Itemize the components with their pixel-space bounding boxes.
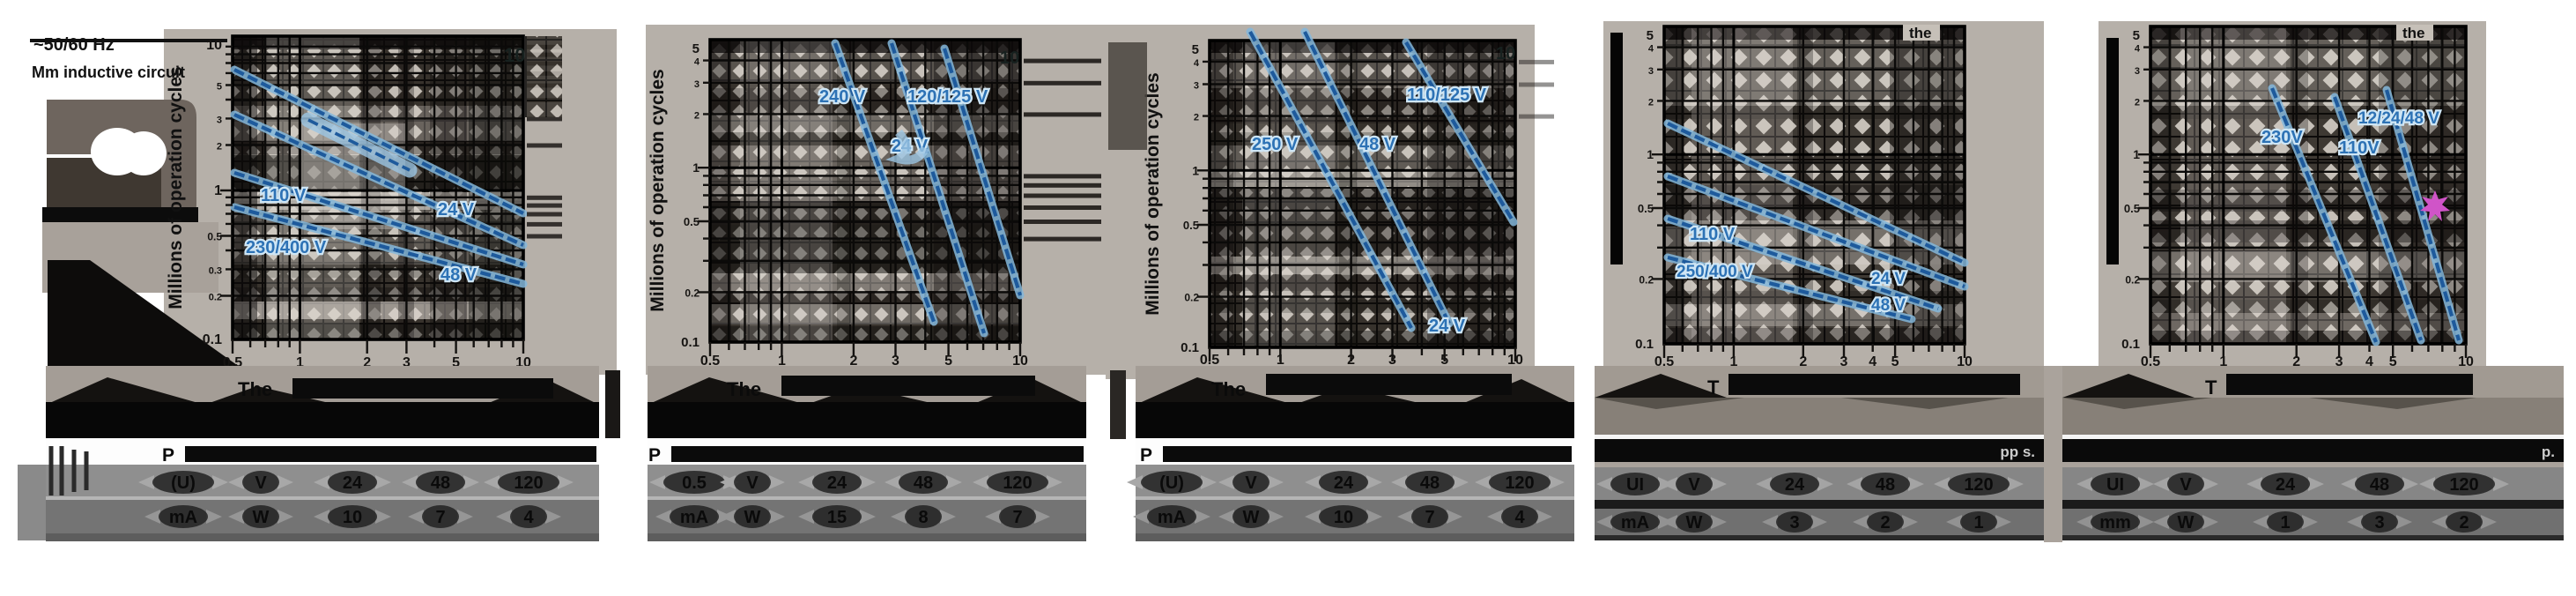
svg-text:230/400 V: 230/400 V — [246, 238, 327, 257]
svg-text:mA: mA — [680, 508, 708, 527]
svg-text:24: 24 — [1334, 473, 1354, 493]
svg-text:15: 15 — [827, 508, 847, 527]
svg-text:mA: mA — [169, 508, 197, 527]
svg-text:W: W — [1243, 508, 1260, 527]
svg-text:0.2: 0.2 — [2125, 273, 2140, 286]
svg-text:10: 10 — [206, 38, 222, 53]
svg-text:3: 3 — [1648, 66, 1654, 77]
svg-text:4: 4 — [1514, 508, 1525, 527]
svg-text:V: V — [1688, 475, 1700, 495]
svg-text:Millions of operation cycles: Millions of operation cycles — [648, 69, 668, 311]
svg-text:0.5: 0.5 — [1183, 219, 1199, 232]
svg-text:120: 120 — [1505, 473, 1534, 493]
svg-text:120: 120 — [1964, 475, 1993, 495]
svg-text:4: 4 — [694, 57, 700, 68]
svg-text:120: 120 — [1003, 473, 1032, 493]
svg-text:24: 24 — [2276, 475, 2296, 495]
svg-text:0.1: 0.1 — [1635, 337, 1654, 352]
svg-text:1: 1 — [1973, 513, 1983, 533]
svg-text:230V: 230V — [2261, 128, 2303, 147]
svg-text:(U): (U) — [1159, 473, 1184, 493]
svg-text:0.1: 0.1 — [2121, 337, 2140, 352]
svg-text:110V: 110V — [2339, 138, 2380, 158]
svg-text:P: P — [1140, 445, 1152, 466]
svg-text:W: W — [1686, 513, 1703, 533]
svg-text:(U): (U) — [171, 473, 196, 493]
svg-text:7: 7 — [1012, 508, 1022, 527]
svg-text:2: 2 — [694, 110, 700, 121]
svg-text:2: 2 — [1347, 353, 1355, 368]
svg-text:mm: mm — [2099, 513, 2131, 533]
svg-text:2: 2 — [1194, 113, 1199, 123]
svg-text:10: 10 — [504, 44, 525, 66]
svg-text:V: V — [255, 473, 267, 493]
svg-text:120: 120 — [2449, 475, 2478, 495]
svg-text:7: 7 — [435, 508, 445, 527]
svg-text:24 V: 24 V — [438, 200, 475, 220]
svg-text:3: 3 — [1388, 353, 1396, 368]
svg-text:2: 2 — [217, 142, 222, 153]
svg-text:2: 2 — [2135, 97, 2140, 108]
svg-text:W: W — [253, 508, 270, 527]
svg-text:110 V: 110 V — [261, 186, 307, 205]
svg-text:T: T — [2205, 376, 2217, 399]
svg-text:W: W — [744, 508, 761, 527]
svg-text:250 V: 250 V — [1252, 135, 1299, 154]
svg-text:250/400 V: 250/400 V — [1677, 263, 1753, 281]
svg-text:120/125 V: 120/125 V — [907, 87, 988, 107]
svg-text:4: 4 — [1194, 58, 1200, 69]
svg-text:5: 5 — [2133, 28, 2140, 43]
svg-text:48: 48 — [1876, 475, 1895, 495]
svg-text:0.2: 0.2 — [685, 287, 700, 299]
svg-text:10: 10 — [1000, 48, 1019, 68]
svg-text:24: 24 — [343, 473, 363, 493]
svg-text:3: 3 — [2374, 513, 2384, 533]
svg-text:UI: UI — [1626, 475, 1644, 495]
svg-text:0.1: 0.1 — [681, 335, 700, 350]
svg-text:3: 3 — [1194, 81, 1199, 92]
svg-text:0.2: 0.2 — [1184, 292, 1199, 304]
svg-text:V: V — [1245, 473, 1257, 493]
svg-text:the: the — [1909, 25, 1932, 41]
svg-text:48: 48 — [1420, 473, 1440, 493]
svg-text:10: 10 — [1334, 508, 1353, 527]
svg-text:0.5: 0.5 — [1638, 202, 1654, 215]
svg-text:p.: p. — [2542, 443, 2555, 460]
svg-text:0.5: 0.5 — [1200, 353, 1219, 368]
svg-text:110 V: 110 V — [1690, 225, 1736, 244]
svg-text:12/24/48 V: 12/24/48 V — [2358, 109, 2439, 128]
svg-text:5: 5 — [1440, 353, 1448, 368]
svg-text:3: 3 — [217, 115, 222, 125]
svg-text:48: 48 — [914, 473, 933, 493]
svg-text:mA: mA — [1158, 508, 1186, 527]
svg-text:1: 1 — [2280, 513, 2290, 533]
svg-text:The: The — [727, 378, 761, 400]
svg-text:5: 5 — [1192, 42, 1199, 57]
svg-text:0.5: 0.5 — [682, 473, 707, 493]
svg-text:24: 24 — [1785, 475, 1805, 495]
svg-text:4: 4 — [2135, 44, 2141, 55]
svg-text:48: 48 — [2370, 475, 2389, 495]
svg-text:24: 24 — [827, 473, 848, 493]
svg-text:Millions of operation cycles: Millions of operation cycles — [166, 66, 186, 309]
svg-text:V: V — [2180, 475, 2192, 495]
svg-text:5: 5 — [217, 82, 222, 93]
svg-text:7: 7 — [1425, 508, 1434, 527]
svg-text:P: P — [162, 445, 174, 466]
svg-text:V: V — [746, 473, 759, 493]
svg-text:Mm inductive circuit: Mm inductive circuit — [32, 63, 185, 81]
svg-text:10: 10 — [1507, 353, 1523, 368]
svg-text:24 V: 24 V — [1429, 317, 1466, 336]
svg-text:UI: UI — [2106, 475, 2124, 495]
svg-text:10: 10 — [343, 508, 362, 527]
svg-text:1: 1 — [214, 183, 222, 198]
svg-text:1: 1 — [2133, 147, 2140, 161]
svg-text:48 V: 48 V — [1871, 296, 1906, 315]
svg-text:110/125 V: 110/125 V — [1407, 86, 1487, 105]
svg-text:240 V: 240 V — [819, 87, 866, 107]
svg-text:8: 8 — [918, 508, 928, 527]
svg-text:2: 2 — [1648, 97, 1654, 108]
svg-text:1: 1 — [1647, 147, 1654, 161]
svg-text:~50/60 Hz: ~50/60 Hz — [33, 35, 115, 55]
svg-text:The: The — [1211, 378, 1246, 400]
svg-text:120: 120 — [514, 473, 543, 493]
svg-text:pp s.: pp s. — [2000, 443, 2035, 460]
svg-text:W: W — [2178, 513, 2195, 533]
svg-text:0.2: 0.2 — [1639, 273, 1654, 286]
svg-text:the: the — [2402, 25, 2425, 41]
svg-text:0.3: 0.3 — [209, 265, 222, 276]
svg-text:24 V: 24 V — [1871, 270, 1906, 288]
svg-text:48 V: 48 V — [1359, 135, 1396, 154]
svg-text:0.5: 0.5 — [207, 231, 222, 243]
svg-text:2: 2 — [2459, 513, 2469, 533]
svg-text:5: 5 — [1647, 28, 1654, 43]
svg-text:48 V: 48 V — [440, 265, 477, 285]
svg-text:4: 4 — [1648, 44, 1654, 55]
svg-text:mA: mA — [1621, 513, 1649, 533]
svg-text:P: P — [648, 445, 661, 466]
svg-text:3: 3 — [2135, 66, 2140, 77]
svg-text:1: 1 — [1192, 163, 1199, 177]
svg-text:T: T — [1707, 376, 1720, 399]
svg-text:1: 1 — [1277, 353, 1284, 368]
svg-text:0.5: 0.5 — [684, 215, 700, 228]
svg-text:0.1: 0.1 — [1181, 340, 1199, 355]
svg-text:10: 10 — [1496, 44, 1515, 63]
svg-text:The: The — [238, 378, 272, 400]
svg-text:0.1: 0.1 — [203, 332, 222, 347]
svg-text:5: 5 — [692, 41, 700, 56]
svg-text:3: 3 — [1789, 513, 1799, 533]
svg-text:48: 48 — [431, 473, 450, 493]
svg-text:1: 1 — [692, 160, 700, 175]
svg-text:3: 3 — [694, 79, 700, 90]
svg-text:0.5: 0.5 — [2124, 202, 2140, 215]
svg-text:2: 2 — [1880, 513, 1890, 533]
svg-text:4: 4 — [523, 508, 534, 527]
svg-text:0.2: 0.2 — [209, 293, 222, 303]
